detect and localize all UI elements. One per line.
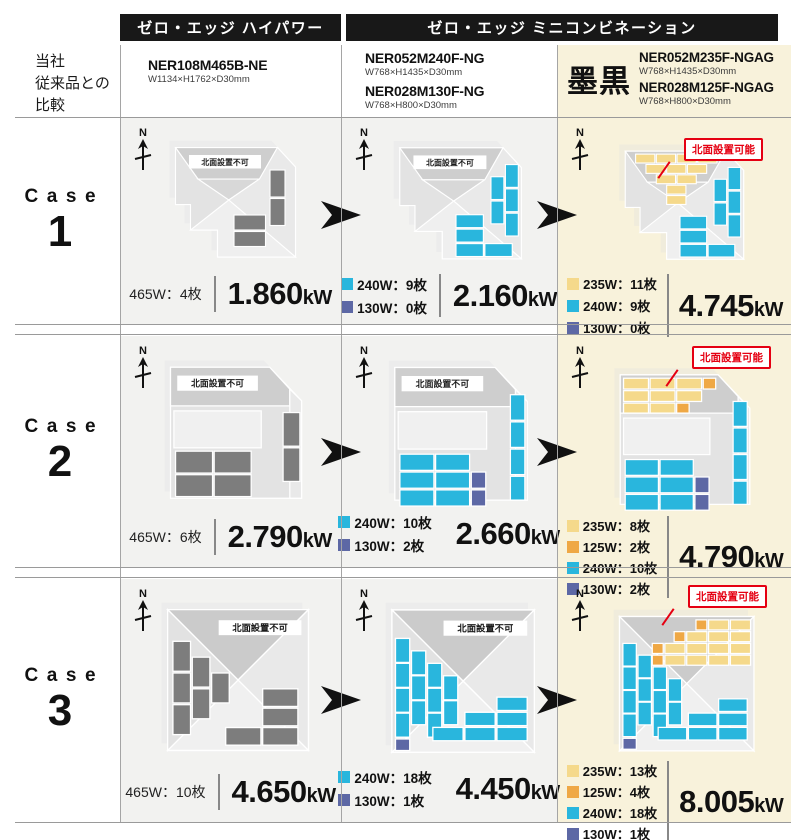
svg-text:N: N bbox=[360, 588, 368, 600]
legend-row: 130W：1枚 bbox=[567, 824, 657, 840]
roof-plan-case2: 北面設置不可 bbox=[147, 342, 315, 510]
roof-plan-case3: 北面設置不可 bbox=[143, 585, 319, 761]
total-output: 2.660kW bbox=[456, 516, 560, 552]
column-divider bbox=[120, 45, 121, 822]
result-divider bbox=[214, 276, 216, 312]
case2-mini-ngag-roof-diagram: N 北面設置可能 bbox=[557, 336, 793, 516]
product-name: NER052M235F-NGAG bbox=[639, 50, 774, 65]
result-divider bbox=[218, 774, 220, 810]
legend-row: 130W：0枚 bbox=[341, 297, 427, 317]
legend-swatch-yellow bbox=[567, 765, 579, 777]
header-bar-high-power-label: ゼロ・エッジ ハイパワー bbox=[137, 17, 324, 38]
comparison-heading-line3: 比較 bbox=[35, 96, 125, 118]
roof-plan-case3 bbox=[596, 593, 764, 761]
case-word: Case bbox=[16, 416, 104, 438]
north-restriction-label: 北面設置不可 bbox=[416, 378, 470, 389]
north-arrow-icon: N bbox=[351, 587, 377, 633]
legend-swatch-cyan bbox=[341, 278, 353, 290]
case1-mini-ng-cell: N 北面設置不可 bbox=[341, 118, 557, 324]
finish-color-label: 墨黒 bbox=[567, 56, 631, 101]
product-size: W768×H1435×D30mm bbox=[639, 66, 774, 77]
roof-plan-case1: 北面設置不可 bbox=[380, 122, 532, 274]
north-allowed-badge: 北面設置可能 bbox=[692, 346, 771, 369]
panel-count: 465W：10枚 bbox=[125, 782, 205, 802]
product-size: W1134×H1762×D30mm bbox=[148, 74, 338, 85]
case2-mini-ng-cell: N bbox=[341, 336, 557, 567]
svg-text:N: N bbox=[139, 127, 147, 139]
product-size: W768×H1435×D30mm bbox=[365, 67, 550, 78]
roof-plan-case2 bbox=[597, 350, 763, 516]
solar-panels-130w bbox=[395, 739, 409, 751]
legend-row: 240W：9枚 bbox=[567, 296, 657, 315]
case1-mini-ng-result: 240W：9枚 130W：0枚 2.160kW bbox=[341, 274, 557, 317]
case3-mini-ngag-roof-diagram: N 北面設置可能 bbox=[557, 579, 793, 761]
row-divider bbox=[15, 577, 791, 578]
total-output: 8.005kW bbox=[679, 784, 783, 820]
panel-legend: 240W：10枚 130W：2枚 bbox=[338, 512, 431, 555]
case-number: 3 bbox=[48, 687, 72, 735]
panel-count: 465W：4枚 bbox=[129, 284, 201, 304]
result-divider bbox=[667, 274, 669, 337]
legend-swatch-purple bbox=[567, 828, 579, 840]
case2-highpower-cell: N 北面設置不可 465W：6枚 bbox=[120, 336, 341, 567]
case1-mini-ngag-roof-diagram: N 北面設置可能 bbox=[557, 118, 793, 274]
legend-swatch-yellow bbox=[567, 520, 579, 532]
legend-row: 125W：2枚 bbox=[567, 537, 657, 556]
header-bar-mini-combination-label: ゼロ・エッジ ミニコンビネーション bbox=[427, 17, 696, 38]
case2-highpower-roof-diagram: N 北面設置不可 bbox=[120, 336, 341, 519]
legend-swatch-cyan bbox=[567, 300, 579, 312]
product-size: W768×H800×D30mm bbox=[365, 100, 550, 111]
case3-mini-ngag-cell: N 北面設置可能 bbox=[557, 579, 793, 822]
svg-text:N: N bbox=[576, 588, 584, 600]
panel-legend: 240W：9枚 130W：0枚 bbox=[341, 274, 427, 317]
legend-row: 130W：1枚 bbox=[338, 790, 431, 810]
case-2-label: Case 2 bbox=[0, 336, 120, 567]
north-arrow-icon: N bbox=[567, 587, 593, 633]
case3-mini-ng-cell: N bbox=[341, 579, 557, 822]
column-divider bbox=[341, 45, 342, 822]
case3-highpower-cell: N 北面設置不可 bbox=[120, 579, 341, 822]
row-divider bbox=[15, 324, 791, 325]
header-bar-mini-combination: ゼロ・エッジ ミニコンビネーション bbox=[346, 14, 778, 41]
total-output: 4.450kW bbox=[456, 771, 560, 807]
case3-mini-ngag-result: 235W：13枚 125W：4枚 240W：18枚 130W：1枚 8.005k… bbox=[557, 761, 793, 840]
case2-highpower-result: 465W：6枚 2.790kW bbox=[120, 519, 341, 555]
north-restriction-label: 北面設置不可 bbox=[232, 622, 287, 633]
case1-highpower-roof-diagram: N 北面設置不可 bbox=[120, 118, 341, 276]
legend-row: 235W：8枚 bbox=[567, 516, 657, 535]
legend-row: 235W：13枚 bbox=[567, 761, 657, 780]
case-word: Case bbox=[16, 186, 104, 208]
row-divider bbox=[15, 822, 791, 823]
product-name: NER028M125F-NGAG bbox=[639, 80, 774, 95]
case1-mini-ngag-cell: N 北面設置可能 bbox=[557, 118, 793, 324]
comparison-infographic: ゼロ・エッジ ハイパワー ゼロ・エッジ ミニコンビネーション 当社 従来品との … bbox=[0, 0, 793, 840]
header-bar-high-power: ゼロ・エッジ ハイパワー bbox=[120, 14, 341, 41]
case-number: 2 bbox=[48, 438, 72, 486]
north-arrow-icon: N bbox=[351, 344, 377, 390]
legend-row: 240W：10枚 bbox=[338, 512, 431, 532]
north-allowed-badge: 北面設置可能 bbox=[688, 585, 767, 608]
column-divider bbox=[557, 45, 558, 822]
north-arrow-icon: N bbox=[567, 126, 593, 172]
product-name: NER108M465B-NE bbox=[148, 57, 338, 73]
total-output: 4.790kW bbox=[679, 539, 783, 575]
case2-mini-ng-roof-diagram: N bbox=[341, 336, 557, 512]
row-divider bbox=[15, 334, 791, 335]
svg-text:N: N bbox=[139, 345, 147, 357]
row-divider bbox=[15, 117, 791, 118]
legend-row: 240W：18枚 bbox=[567, 803, 657, 822]
panel-legend: 240W：18枚 130W：1枚 bbox=[338, 767, 431, 810]
case-word: Case bbox=[16, 665, 104, 687]
case3-mini-ng-result: 240W：18枚 130W：1枚 4.450kW bbox=[341, 767, 557, 810]
case-3-label: Case 3 bbox=[0, 579, 120, 822]
case1-highpower-cell: N 北面設置不可 465W：4枚 bbox=[120, 118, 341, 324]
svg-text:N: N bbox=[360, 345, 368, 357]
svg-text:N: N bbox=[139, 588, 147, 600]
comparison-heading: 当社 従来品との 比較 bbox=[35, 52, 125, 117]
legend-row: 130W：2枚 bbox=[338, 535, 431, 555]
svg-text:N: N bbox=[576, 345, 584, 357]
case-number: 1 bbox=[48, 208, 72, 256]
svg-text:N: N bbox=[360, 127, 368, 139]
north-restriction-label: 北面設置不可 bbox=[457, 622, 514, 633]
legend-swatch-cyan bbox=[567, 807, 579, 819]
product-size: W768×H800×D30mm bbox=[639, 96, 774, 107]
north-arrow-icon: N bbox=[567, 344, 593, 390]
legend-row: 125W：4枚 bbox=[567, 782, 657, 801]
panel-legend: 235W：11枚 240W：9枚 130W：0枚 bbox=[567, 274, 657, 337]
legend-swatch-purple bbox=[341, 301, 353, 313]
case1-highpower-result: 465W：4枚 1.860kW bbox=[120, 276, 341, 312]
case1-mini-ng-roof-diagram: N 北面設置不可 bbox=[341, 118, 557, 274]
total-output: 1.860kW bbox=[228, 276, 332, 312]
result-divider bbox=[667, 761, 669, 840]
legend-row: 235W：11枚 bbox=[567, 274, 657, 293]
legend-swatch-yellow bbox=[567, 278, 579, 290]
total-output: 2.160kW bbox=[453, 278, 557, 314]
legend-row: 240W：9枚 bbox=[341, 274, 427, 294]
case-1-label: Case 1 bbox=[0, 118, 120, 324]
north-arrow-icon: N bbox=[351, 126, 377, 172]
north-restriction-label: 北面設置不可 bbox=[201, 157, 248, 167]
north-arrow-icon: N bbox=[130, 344, 156, 390]
roof-plan-case2: 北面設置不可 bbox=[371, 342, 541, 512]
total-output: 2.790kW bbox=[228, 519, 332, 555]
case3-highpower-result: 465W：10枚 4.650kW bbox=[120, 774, 341, 810]
case3-highpower-roof-diagram: N 北面設置不可 bbox=[120, 579, 341, 774]
product-name: NER028M130F-NG bbox=[365, 83, 550, 99]
roof-plan-case1: 北面設置不可 bbox=[156, 122, 306, 272]
total-output: 4.745kW bbox=[679, 288, 783, 324]
product-col2-models: NER052M240F-NG W768×H1435×D30mm NER028M1… bbox=[365, 50, 550, 116]
case2-mini-ngag-cell: N 北面設置可能 bbox=[557, 336, 793, 567]
comparison-heading-line1: 当社 bbox=[35, 52, 125, 74]
solar-panels-130w bbox=[623, 738, 636, 749]
comparison-heading-line2: 従来品との bbox=[35, 74, 125, 96]
row-divider bbox=[15, 567, 791, 568]
roof-plan-case3: 北面設置不可 bbox=[367, 585, 545, 763]
product-name: NER052M240F-NG bbox=[365, 50, 550, 66]
svg-text:N: N bbox=[576, 127, 584, 139]
case3-mini-ng-roof-diagram: N bbox=[341, 579, 557, 767]
panel-count: 465W：6枚 bbox=[129, 527, 201, 547]
north-arrow-icon: N bbox=[130, 587, 156, 633]
north-allowed-badge: 北面設置可能 bbox=[684, 138, 763, 161]
north-arrow-icon: N bbox=[130, 126, 156, 172]
case2-mini-ng-result: 240W：10枚 130W：2枚 2.660kW bbox=[341, 512, 557, 555]
result-divider bbox=[214, 519, 216, 555]
case1-mini-ngag-result: 235W：11枚 240W：9枚 130W：0枚 4.745kW bbox=[557, 274, 793, 337]
product-col1-models: NER108M465B-NE W1134×H1762×D30mm bbox=[148, 57, 338, 90]
panel-legend: 235W：13枚 125W：4枚 240W：18枚 130W：1枚 bbox=[567, 761, 657, 840]
result-divider bbox=[439, 274, 441, 317]
north-restriction-label: 北面設置不可 bbox=[191, 378, 244, 389]
legend-swatch-orange bbox=[567, 541, 579, 553]
product-col3-models: 墨黒 NER052M235F-NGAG W768×H1435×D30mm NER… bbox=[567, 50, 793, 107]
total-output: 4.650kW bbox=[232, 774, 336, 810]
legend-row: 240W：18枚 bbox=[338, 767, 431, 787]
legend-swatch-orange bbox=[567, 786, 579, 798]
north-restriction-label: 北面設置不可 bbox=[426, 157, 474, 167]
